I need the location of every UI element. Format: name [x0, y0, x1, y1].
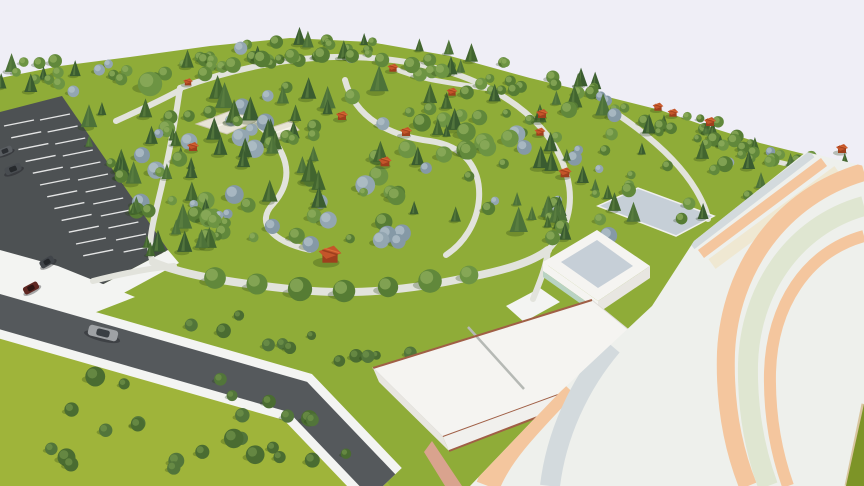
park-masterplan-render: [0, 0, 864, 486]
render-viewport: [0, 0, 864, 486]
